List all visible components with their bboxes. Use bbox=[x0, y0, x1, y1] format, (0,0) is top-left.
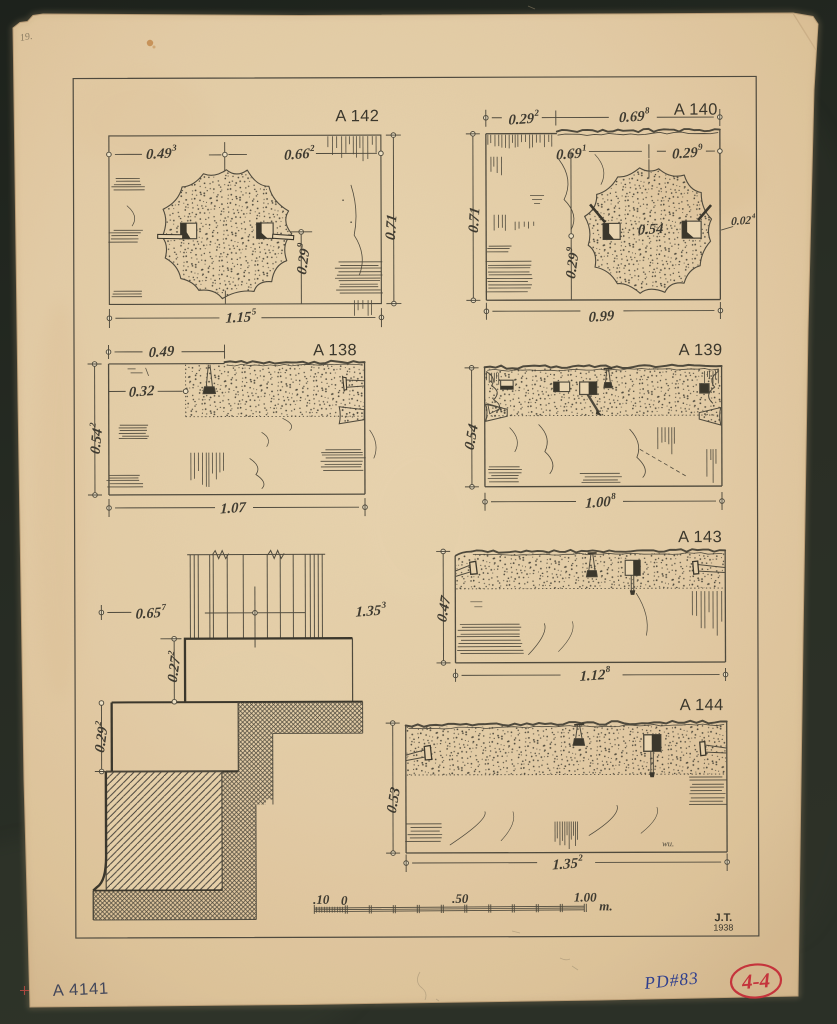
svg-text:3: 3 bbox=[171, 142, 178, 152]
svg-text:4-4: 4-4 bbox=[740, 968, 771, 994]
svg-text:.50: .50 bbox=[452, 891, 469, 906]
svg-text:m.: m. bbox=[599, 898, 612, 913]
svg-text:A 4141: A 4141 bbox=[52, 980, 109, 1000]
svg-text:1: 1 bbox=[582, 142, 587, 152]
svg-text:0.49: 0.49 bbox=[149, 343, 176, 361]
svg-text:0.54: 0.54 bbox=[88, 427, 106, 456]
svg-text:0.71: 0.71 bbox=[383, 213, 401, 241]
svg-text:0.54: 0.54 bbox=[638, 221, 664, 239]
svg-text:1.00: 1.00 bbox=[585, 494, 612, 512]
svg-text:A 140: A 140 bbox=[674, 101, 718, 119]
svg-text:1.15: 1.15 bbox=[225, 309, 251, 326]
svg-text:1.12: 1.12 bbox=[580, 667, 606, 685]
svg-text:1.00: 1.00 bbox=[574, 889, 597, 904]
svg-text:1.35: 1.35 bbox=[552, 856, 578, 874]
svg-text:0.02: 0.02 bbox=[731, 215, 752, 229]
svg-text:0.69: 0.69 bbox=[619, 108, 646, 126]
svg-text:0.66: 0.66 bbox=[284, 146, 311, 164]
svg-text:0.29: 0.29 bbox=[672, 145, 699, 163]
svg-text:0.71: 0.71 bbox=[466, 206, 484, 234]
svg-text:A 143: A 143 bbox=[678, 528, 722, 546]
svg-text:1.07: 1.07 bbox=[220, 500, 247, 518]
svg-text:A 142: A 142 bbox=[335, 107, 379, 125]
svg-text:1938: 1938 bbox=[713, 923, 733, 933]
svg-text:0.29: 0.29 bbox=[508, 111, 535, 129]
svg-text:A 138: A 138 bbox=[313, 341, 357, 359]
svg-text:0.32: 0.32 bbox=[129, 383, 155, 401]
svg-text:wu.: wu. bbox=[662, 838, 674, 848]
svg-text:A 144: A 144 bbox=[680, 696, 724, 714]
svg-text:0.65: 0.65 bbox=[135, 605, 161, 623]
svg-text:.10: .10 bbox=[313, 892, 330, 907]
svg-text:A 139: A 139 bbox=[679, 341, 723, 359]
svg-text:19.: 19. bbox=[19, 31, 33, 44]
svg-text:0.49: 0.49 bbox=[146, 146, 173, 163]
svg-text:0.99: 0.99 bbox=[588, 308, 615, 326]
svg-text:1.35: 1.35 bbox=[355, 603, 381, 621]
